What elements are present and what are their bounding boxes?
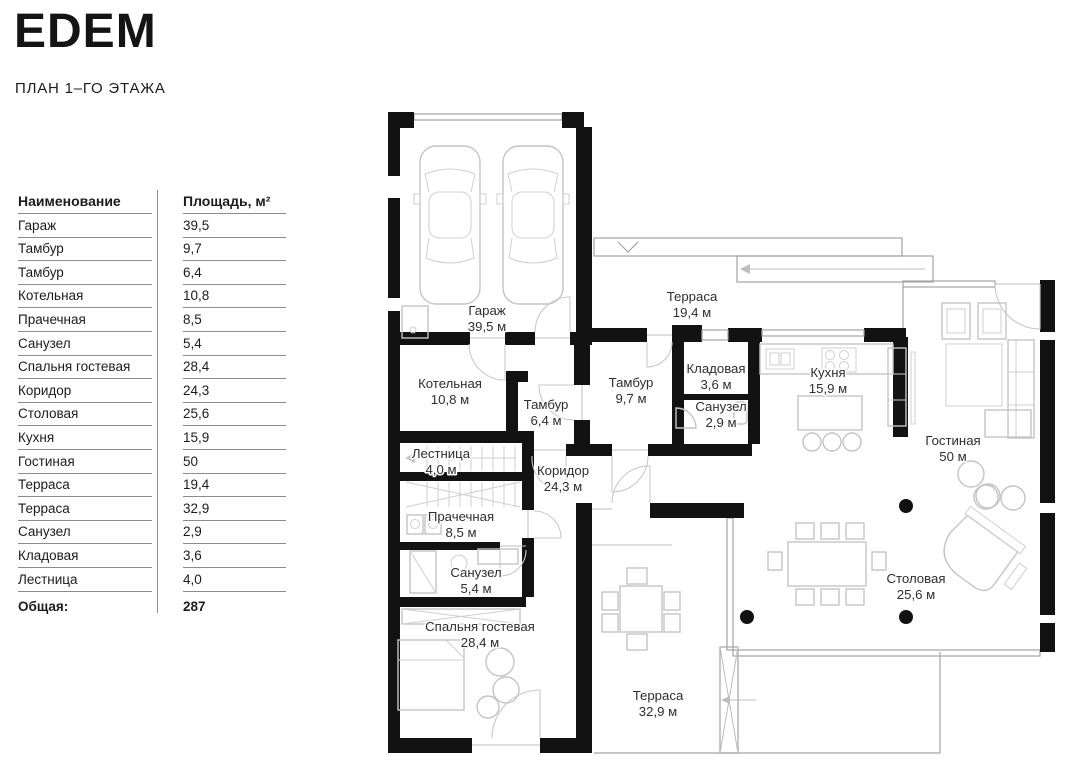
sofa-icon xyxy=(985,340,1034,438)
column-icon xyxy=(899,499,913,513)
room-area-cell: 3,6 xyxy=(183,544,286,568)
room-label: Тамбур9,7 м xyxy=(609,375,654,406)
table-header-row: Наименование Площадь, м² xyxy=(18,188,288,214)
room-name-cell: Спальня гостевая xyxy=(18,356,152,380)
car-icon xyxy=(414,146,486,304)
kitchen-island-icon xyxy=(798,396,862,451)
shower-icon xyxy=(676,408,696,428)
table-row: Кухня15,9 xyxy=(18,426,288,450)
room-area-cell: 15,9 xyxy=(183,426,286,450)
table-row: Тамбур6,4 xyxy=(18,261,288,285)
room-name-cell: Кухня xyxy=(18,426,152,450)
brand-title: EDEM xyxy=(14,4,157,59)
room-name-cell: Терраса xyxy=(18,497,152,521)
room-label: Терраса19,4 м xyxy=(667,289,718,320)
windows-layer xyxy=(702,330,864,340)
room-name-cell: Санузел xyxy=(18,521,152,545)
terrace-table-icon xyxy=(602,568,680,650)
room-area-cell: 5,4 xyxy=(183,332,286,356)
garage-unit-icon xyxy=(402,306,428,338)
tv-cabinet-icon xyxy=(888,348,915,426)
table-row: Терраса32,9 xyxy=(18,497,288,521)
table-row: Санузел5,4 xyxy=(18,332,288,356)
room-area-cell: 19,4 xyxy=(183,474,286,498)
chair-icon xyxy=(958,461,984,487)
room-area-cell: 9,7 xyxy=(183,238,286,262)
table-row: Прачечная8,5 xyxy=(18,308,288,332)
piano-icon xyxy=(933,506,1037,606)
room-area-cell: 6,4 xyxy=(183,261,286,285)
room-label: Тамбур6,4 м xyxy=(524,397,569,428)
room-name-cell: Кладовая xyxy=(18,544,152,568)
table-row: Спальня гостевая28,4 xyxy=(18,356,288,380)
room-name-cell: Столовая xyxy=(18,403,152,427)
total-value: 287 xyxy=(183,592,286,618)
room-label: Гостиная50 м xyxy=(925,433,980,464)
room-name-cell: Терраса xyxy=(18,474,152,498)
area-table: Наименование Площадь, м² Гараж39,5Тамбур… xyxy=(18,188,288,618)
room-area-cell: 8,5 xyxy=(183,308,286,332)
room-name-cell: Тамбур xyxy=(18,261,152,285)
room-label: Терраса32,9 м xyxy=(633,688,684,719)
room-name-cell: Коридор xyxy=(18,379,152,403)
room-name-cell: Санузел xyxy=(18,332,152,356)
dining-table-icon xyxy=(768,523,886,605)
room-name-cell: Котельная xyxy=(18,285,152,309)
room-label: Гараж39,5 м xyxy=(468,303,506,334)
room-area-cell: 39,5 xyxy=(183,214,286,238)
column-icon xyxy=(899,610,913,624)
table-row: Гараж39,5 xyxy=(18,214,288,238)
room-area-cell: 32,9 xyxy=(183,497,286,521)
room-label: Кухня15,9 м xyxy=(809,365,847,396)
room-area-cell: 2,9 xyxy=(183,521,286,545)
chair-icon xyxy=(1001,486,1025,510)
room-area-cell: 24,3 xyxy=(183,379,286,403)
table-row: Котельная10,8 xyxy=(18,285,288,309)
table-column-divider xyxy=(157,190,158,613)
room-label: Санузел5,4 м xyxy=(450,565,501,596)
room-area-cell: 4,0 xyxy=(183,568,286,592)
table-total-row: Общая: 287 xyxy=(18,592,288,618)
total-label: Общая: xyxy=(18,592,152,618)
armchair-icon xyxy=(942,303,970,339)
armchair-icon xyxy=(978,303,1006,339)
bed-icon xyxy=(398,640,464,710)
room-area-cell: 25,6 xyxy=(183,403,286,427)
room-label: Кладовая3,6 м xyxy=(686,361,745,392)
room-area-cell: 28,4 xyxy=(183,356,286,380)
room-name-cell: Лестница xyxy=(18,568,152,592)
room-area-cell: 50 xyxy=(183,450,286,474)
coffee-table-icon xyxy=(946,344,1002,406)
table-row: Кладовая3,6 xyxy=(18,544,288,568)
table-row: Терраса19,4 xyxy=(18,474,288,498)
table-row: Коридор24,3 xyxy=(18,379,288,403)
page: EDEM ПЛАН 1–ГО ЭТАЖА Наименование Площад… xyxy=(0,0,1072,768)
column-icon xyxy=(740,610,754,624)
room-area-cell: 10,8 xyxy=(183,285,286,309)
header-area: Площадь, м² xyxy=(183,188,286,214)
room-label: Столовая25,6 м xyxy=(887,571,946,602)
room-label: Коридор24,3 м xyxy=(537,463,589,494)
floor-plan-svg: Гараж39,5 мКотельная10,8 мТамбур6,4 мТам… xyxy=(376,104,1072,764)
table-row: Столовая25,6 xyxy=(18,403,288,427)
chair-icon xyxy=(477,696,499,718)
table-body: Гараж39,5Тамбур9,7Тамбур6,4Котельная10,8… xyxy=(18,214,288,592)
plan-subtitle: ПЛАН 1–ГО ЭТАЖА xyxy=(15,80,166,97)
car-icon xyxy=(497,146,569,304)
room-name-cell: Гараж xyxy=(18,214,152,238)
chair-icon xyxy=(493,677,519,703)
room-label: Котельная10,8 м xyxy=(418,376,482,407)
table-row: Лестница4,0 xyxy=(18,568,288,592)
room-name-cell: Тамбур xyxy=(18,238,152,262)
room-name-cell: Прачечная xyxy=(18,308,152,332)
table-row: Тамбур9,7 xyxy=(18,238,288,262)
room-name-cell: Гостиная xyxy=(18,450,152,474)
header-name: Наименование xyxy=(18,188,152,214)
chair-icon xyxy=(974,485,998,509)
chair-icon xyxy=(486,648,514,676)
table-row: Санузел2,9 xyxy=(18,521,288,545)
table-row: Гостиная50 xyxy=(18,450,288,474)
